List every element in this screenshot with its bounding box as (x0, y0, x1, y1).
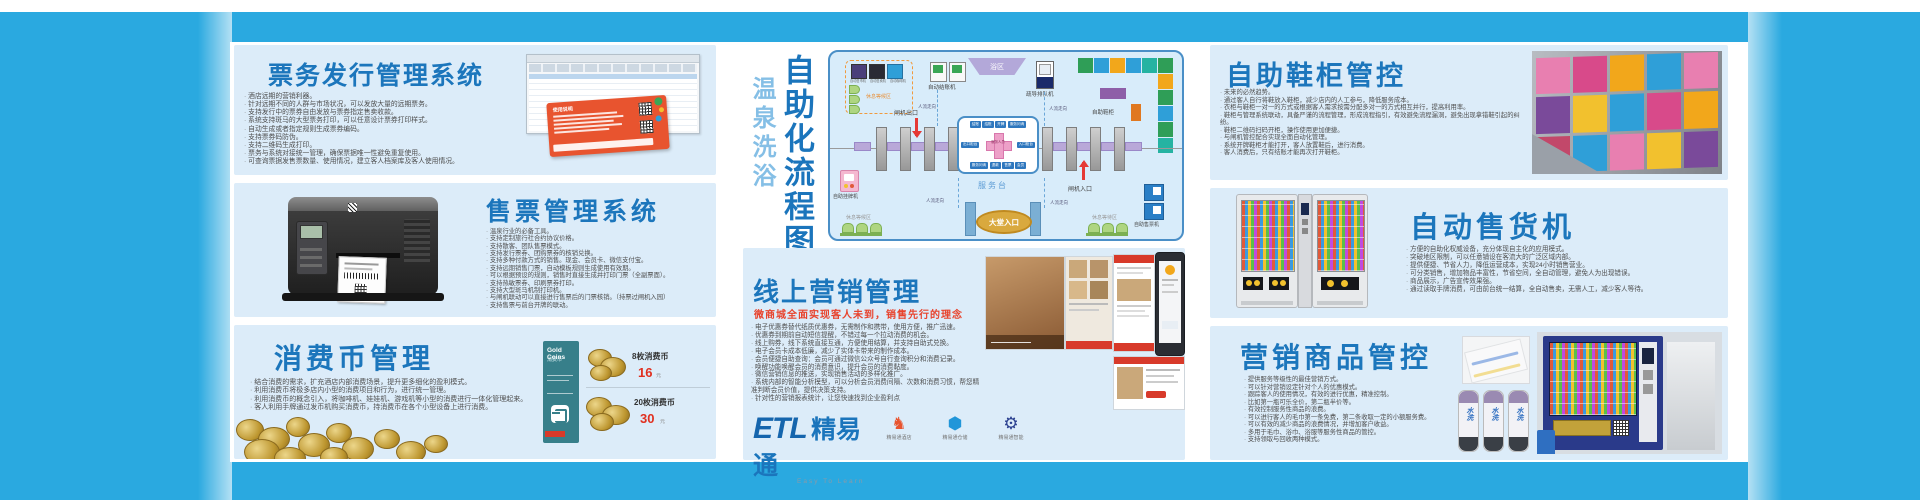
towel-vending-photo (1537, 332, 1722, 454)
coin-price-unit: 元 (660, 418, 665, 425)
paint-dot (659, 107, 664, 112)
spa-photo-screenshot (985, 256, 1065, 350)
desk-middle-row: 出口柜台 服务人员 入口柜台 (961, 133, 1035, 157)
towel-rolls-photo: 水洗 水洗 水洗 (1458, 388, 1530, 452)
gate-pillar (1114, 127, 1125, 171)
desk-chips-top: 结账结账开牌服务问询 (961, 121, 1035, 128)
shoe-title: 自助鞋柜管控 (1226, 54, 1406, 93)
coin-price-name: 8枚消费币 (632, 351, 668, 362)
gate-exit-arrow (915, 118, 918, 136)
flow-label: 人流走向 (1049, 106, 1067, 112)
ticket-card-title: 使用说明 (553, 105, 573, 113)
gate-entry-arrow (1082, 162, 1085, 180)
process-diagram: 自动售币机自动售卖机自动咖啡机 休息等候区 自动结账机 浴区 疏导排队机 (828, 50, 1184, 241)
flow-line (937, 90, 938, 126)
coin-title: 消费币管理 (274, 337, 434, 377)
flow-label: 人流走向 (926, 198, 944, 204)
ticket-sale-title: 售票管理系统 (486, 192, 660, 228)
self-ticket-machine (1144, 203, 1164, 220)
self-ticket-machine (1144, 184, 1164, 201)
phone-screenshot (1155, 252, 1185, 356)
coffee-machine (887, 64, 903, 79)
lobby-pillar (965, 202, 976, 236)
etl-logo-text: ETL (753, 412, 807, 445)
towel-label: 水洗 (1489, 407, 1499, 421)
desk-chip-left: 出口柜台 (961, 142, 979, 149)
towel-label: 水洗 (1464, 407, 1474, 421)
gold-coin-card: Gold Coins 消费币 (543, 341, 579, 443)
shoe-locker-photo (1532, 51, 1722, 174)
coin-vendor-machine (851, 64, 867, 79)
vending-machines-photo (1236, 194, 1366, 312)
tag-machine (840, 170, 859, 192)
product-photo-screenshot (1065, 256, 1113, 350)
lobby-entrance-label: 大堂入口 (989, 217, 1019, 228)
cube-icon: ⬢ (935, 414, 975, 434)
flow-line (1044, 92, 1045, 126)
shoe-cabinet-desk (1100, 88, 1126, 99)
coins-photo (234, 413, 464, 459)
panel-goods-control: 营销商品管控 提供服务等级性的最佳营销方式。可以针对营销设定针对个人的优惠模式。… (1210, 326, 1728, 460)
shoe-cabinet-pillar (1131, 104, 1141, 121)
panel-online-marketing: 线上营销管理 微商城全面实现客人未到，销售先行的理念 电子优惠券替代纸质优惠券，… (743, 248, 1185, 460)
coin-price-unit: 元 (656, 372, 661, 379)
ticket-sale-bullets: 温泉行业的必备工具。支持定制旅行社合约协议价格。支持散客、团队售票模式。支持发行… (486, 228, 712, 309)
shoe-cabinet-grid-col (1158, 74, 1173, 153)
zebra-logo (348, 203, 357, 212)
shoe-cabinet-label: 自助鞋柜 (1092, 108, 1114, 116)
left-fade (198, 12, 232, 500)
brand-product-label: 精易通智能 (991, 434, 1031, 441)
coin-price-value: 30 (640, 411, 654, 426)
brand-product: ⚙ 精易通智能 (991, 414, 1031, 441)
service-desk-box: 结账结账开牌服务问询 出口柜台 服务人员 入口柜台 服务问询退款售票会员 (957, 116, 1039, 174)
paint-dot (654, 97, 663, 106)
queue-machine-label: 疏导排队机 (1026, 90, 1054, 98)
poster: { "brand": { "logo_etl": "ETL", "logo_cn… (0, 0, 1920, 500)
staff-cross-label: 服务人员 (990, 141, 1006, 145)
waiting-chairs (849, 85, 860, 114)
service-desk-label: 服务台 (978, 180, 1008, 191)
gate-exit-label: 闸机出口 (894, 108, 918, 117)
brand-product-label: 精易通仓储 (935, 434, 975, 441)
content-canvas: 票务发行管理系统 酒店远期的营销利器。针对远期不同的人群与市场状况，可以发放大量… (230, 42, 1748, 462)
coin-price-value: 16 (638, 365, 652, 380)
coin-price-name: 20枚消费币 (634, 397, 675, 408)
ticket-card: 使用说明 (546, 95, 669, 157)
rest-area-bl-label: 休息等候区 (846, 214, 871, 221)
gate-pillar (924, 127, 935, 171)
gate-pillar (900, 127, 911, 171)
panel-ticket-issue: 票务发行管理系统 酒店远期的营销利器。针对远期不同的人群与市场状况，可以发放大量… (234, 45, 716, 175)
self-ticket-machine-label: 自助售票机 (1134, 221, 1159, 228)
goods-bullets: 提供服务等级性的最佳营销方式。可以针对营销设定针对个人的优惠模式。跟踪客人的使用… (1244, 376, 1462, 444)
horse-icon: ♞ (879, 414, 919, 434)
goods-title: 营销商品管控 (1240, 336, 1432, 376)
online-subtitle: 微商城全面实现客人未到，销售先行的理念 (754, 306, 963, 321)
rest-chairs-bl (842, 223, 882, 233)
qr-code (638, 102, 652, 116)
checkout-label: 自动结账机 (928, 83, 956, 91)
flow-line (958, 178, 959, 208)
app-screenshot (1113, 254, 1155, 352)
online-title: 线上营销管理 (753, 272, 921, 309)
flow-label: 人流走向 (918, 104, 936, 110)
waiting-area-label: 休息等候区 (866, 93, 891, 100)
diagram-title-vertical: 自助化流程图 (774, 54, 819, 258)
qr-code (640, 120, 654, 134)
ticket-issue-title: 票务发行管理系统 (268, 56, 484, 92)
gate-pillar (1066, 127, 1077, 171)
gold-card-subtitle: 消费币 (547, 356, 562, 363)
vending-title: 自动售货机 (1410, 204, 1575, 246)
auto-checkout-machine (930, 62, 947, 82)
brand-products: ♞ 精易通酒店 ⬢ 精易通仓储 ⚙ 精易通智能 (879, 414, 1031, 441)
desk-chips-bottom: 服务问询退款售票会员 (961, 162, 1035, 169)
panel-ticket-sale: 售票管理系统 温泉行业的必备工具。支持定制旅行社合约协议价格。支持散客、团队售票… (234, 183, 716, 317)
exit-arrow-icon (551, 405, 569, 423)
towel-label: 水洗 (1514, 407, 1524, 421)
gate-pillar (1042, 127, 1053, 171)
brand-product: ♞ 精易通酒店 (879, 414, 919, 441)
panel-vending: 自动售货机 方便的自助化权威设备，充分体现自主化的应用模式。突破地区限制，可以任… (1210, 188, 1728, 318)
tag-machine-label: 自助挂牌机 (833, 193, 858, 200)
paint-dot (655, 115, 661, 121)
panel-coin: 消费币管理 结合消费的需求，扩充酒店内部消费场景，提升更多细化的盈利模式。利用消… (234, 325, 716, 459)
comb-packets-photo (1462, 336, 1530, 384)
gate-entry-label: 闸机入口 (1068, 184, 1092, 193)
gate-pillar (876, 127, 887, 171)
auto-checkout-machine (949, 62, 966, 82)
ticket-issue-bullets: 酒店远期的营销利器。针对远期不同的人群与市场状况，可以发放大量的远期票务。支持发… (244, 93, 532, 166)
vending-bullets: 方便的自助化权威设备，充分体现自主化的应用模式。突破地区限制，可以任意铺设在客流… (1406, 246, 1722, 293)
coin-price-list: 8枚消费币 16 元 20枚消费币 30 元 (586, 343, 712, 443)
flow-line (1044, 178, 1045, 208)
desk-chip-right: 入口柜台 (1017, 142, 1035, 149)
label-printer-photo (278, 191, 458, 311)
flow-label: 人流走向 (1050, 200, 1068, 206)
lobby-pillar (1030, 202, 1041, 236)
online-bullets: 电子优惠券替代纸质优惠券，无需制作和携带，使用方便，推广迅速。优惠券到期前自动短… (751, 324, 983, 403)
brand-product-label: 精易通酒店 (879, 434, 919, 441)
rest-chairs-br (1088, 223, 1128, 233)
gate-pillar (1090, 127, 1101, 171)
waiting-area: 自动售币机自动售卖机自动咖啡机 休息等候区 (845, 60, 913, 114)
barcode (344, 272, 378, 279)
app-screenshot-small (1113, 356, 1185, 410)
coin-bullets: 结合消费的需求，扩充酒店内部消费场景，提升更多细化的盈利模式。利用消费币将极多店… (250, 379, 562, 413)
shoe-cabinet-grid (1078, 58, 1173, 73)
right-fade (1748, 12, 1782, 500)
robot-arm-icon: ⚙ (991, 414, 1031, 434)
staff-cross-icon: 服务人员 (986, 133, 1010, 157)
lobby-entrance: 大堂入口 (976, 210, 1032, 234)
card-red-tag (545, 431, 565, 437)
vending-machine-small (869, 64, 885, 79)
vendor-labels: 自动售币机自动售卖机自动咖啡机 (849, 78, 907, 83)
bath-zone-label: 浴区 (990, 62, 1004, 72)
etl-logo: ETL 精易通 Easy To Learn (753, 410, 873, 454)
panel-shoe-cabinet: 自助鞋柜管控 未来的必然趋势。通过客人自行将鞋放入鞋柜，减少店内的人工参与，降低… (1210, 45, 1728, 180)
etl-logo-sub: Easy To Learn (797, 478, 873, 485)
brand-product: ⬢ 精易通仓储 (935, 414, 975, 441)
queue-machine (1036, 61, 1054, 89)
bath-zone: 浴区 (968, 58, 1026, 75)
blue-bucket (1537, 430, 1555, 454)
rest-area-br-label: 休息等待区 (1092, 214, 1117, 221)
shoe-bullets: 未来的必然趋势。通过客人自行将鞋放入鞋柜，减少店内的人工参与，降低服务成本。衣柜… (1220, 89, 1526, 157)
